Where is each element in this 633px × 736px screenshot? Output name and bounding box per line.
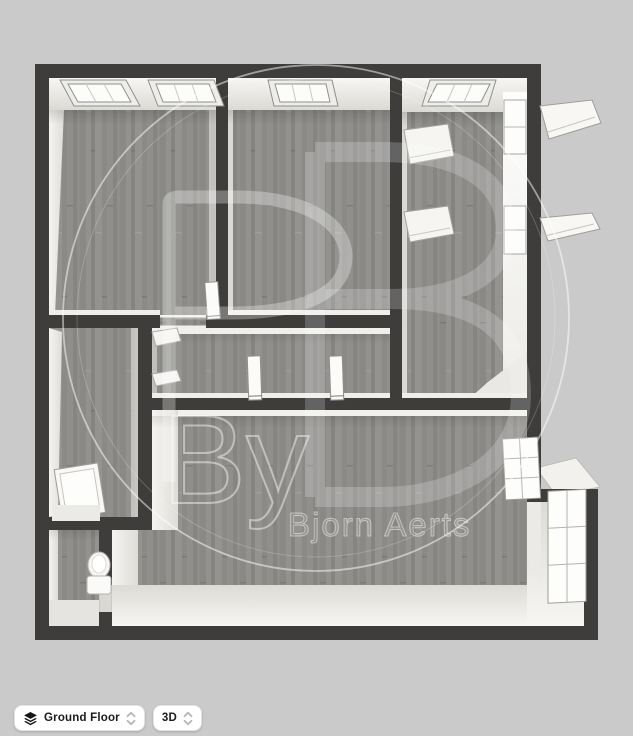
skylight-window: [148, 80, 224, 106]
spinner-icon: [183, 711, 193, 726]
window-right-room-upper: [504, 100, 526, 154]
wall-exterior-bottom: [35, 626, 598, 640]
window-living-east: [502, 437, 540, 500]
skylight-window: [268, 80, 338, 106]
wall-exterior-left: [35, 64, 49, 640]
window-right-room-lower: [504, 206, 526, 254]
skylight-window: [422, 80, 496, 106]
wall-c-left: [49, 315, 160, 328]
awning-sash-upper: [540, 100, 601, 139]
spinner-icon: [126, 711, 136, 726]
skylight-windows: [60, 80, 496, 106]
floor-selector-label: Ground Floor: [44, 712, 120, 724]
skylight-window: [60, 80, 140, 106]
awning-sash-lower: [540, 213, 600, 241]
wall-hall-right: [138, 328, 152, 530]
doorway-left-room: [160, 315, 206, 328]
view-mode-button[interactable]: 3D: [153, 705, 202, 731]
wall-c-right: [206, 315, 402, 328]
window-hall-sill: [52, 505, 100, 521]
toilet: [87, 552, 111, 594]
open-door-left-room: [205, 282, 221, 320]
floor-living-room: [136, 410, 527, 585]
layers-icon: [23, 711, 38, 726]
floor-selector-button[interactable]: Ground Floor: [14, 705, 145, 731]
floorplan-3d-canvas[interactable]: By Bjorn Aerts: [0, 0, 633, 736]
wall-exterior-top: [35, 64, 541, 78]
wall-a: [216, 78, 228, 315]
wall-bath-right-lower: [99, 612, 112, 626]
viewer-toolbar: Ground Floor 3D: [14, 705, 202, 731]
wall-d: [152, 398, 541, 410]
floor-bedroom-left: [49, 108, 216, 315]
open-door-corridor-1: [247, 356, 262, 400]
open-door-corridor-2: [329, 356, 344, 400]
view-mode-label: 3D: [162, 712, 177, 724]
wall-b: [390, 78, 402, 410]
window-extension-east: [548, 489, 586, 603]
wall-exterior-right: [527, 64, 541, 502]
floor-bedroom-middle: [228, 108, 390, 315]
floorplan-viewer-stage: By Bjorn Aerts Ground Floor 3D: [0, 0, 633, 736]
